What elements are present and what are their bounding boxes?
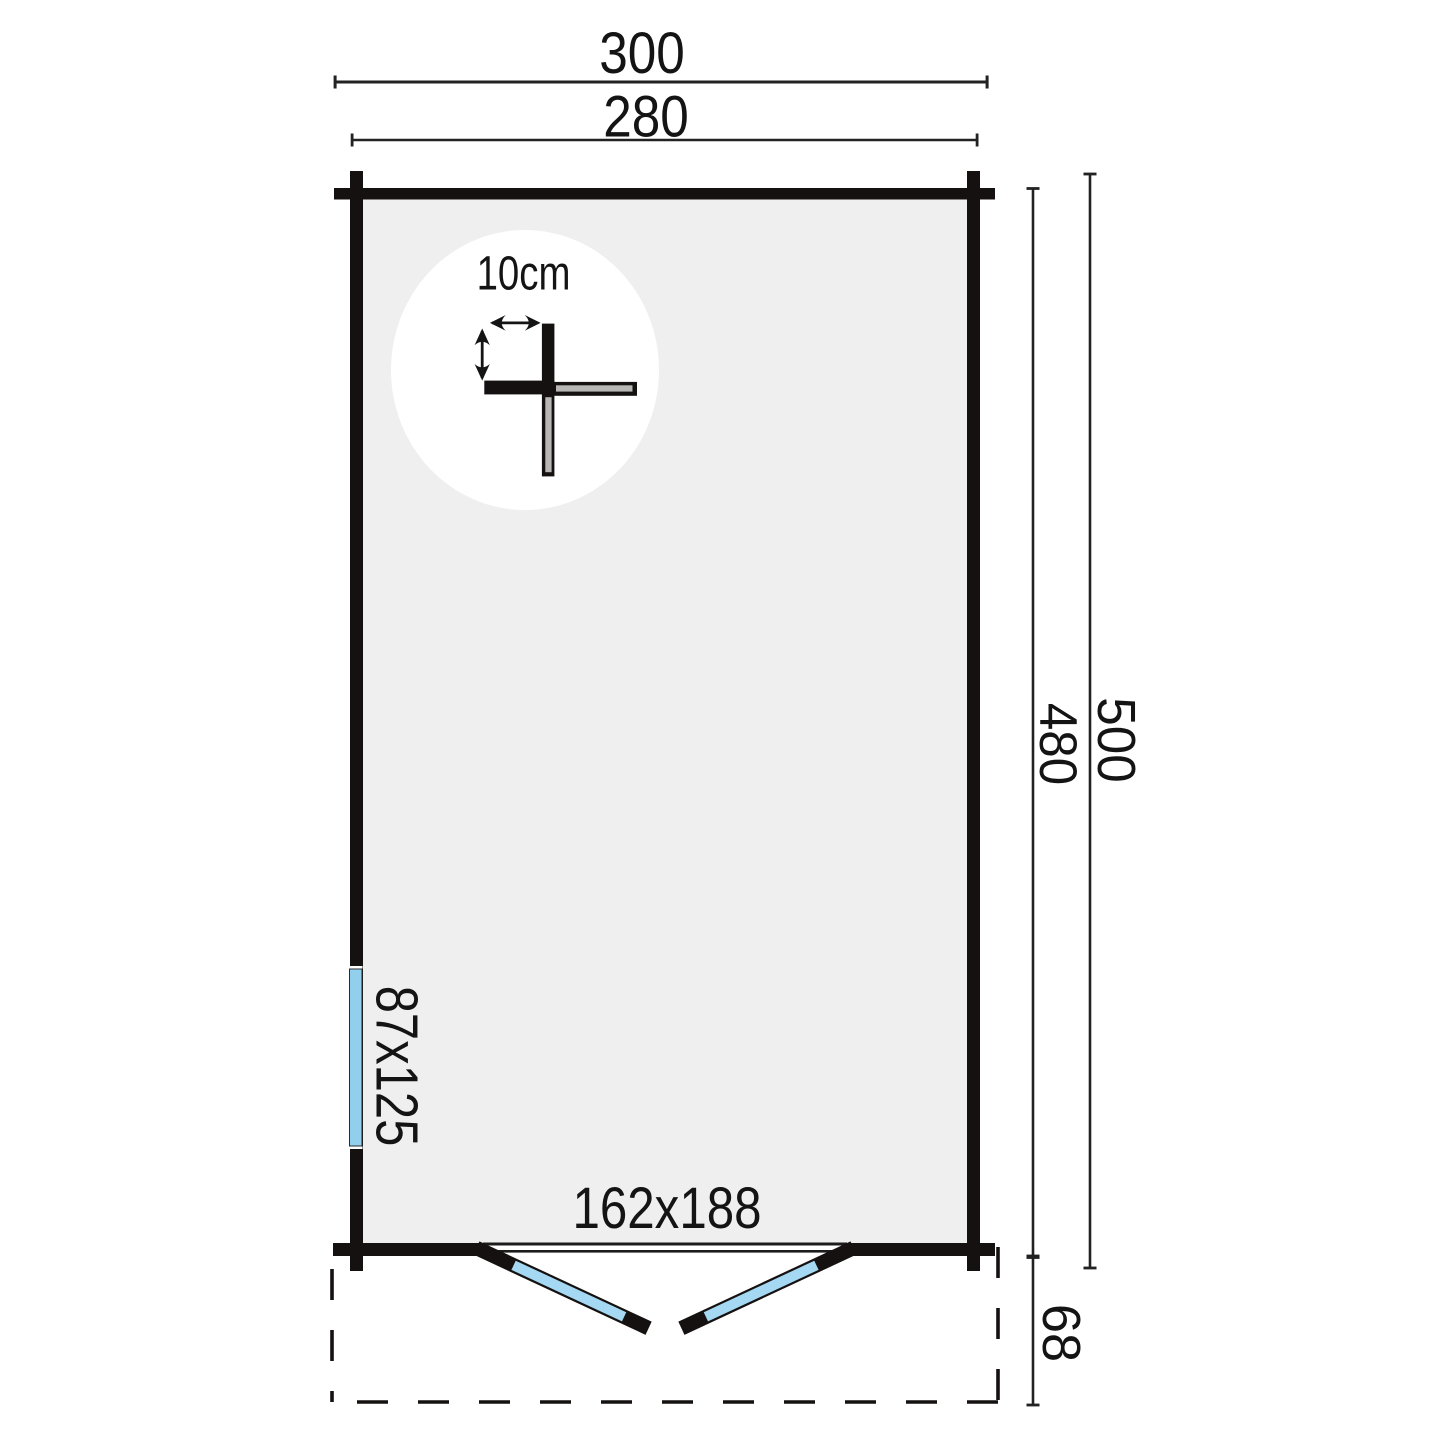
svg-text:68: 68 <box>1031 1304 1091 1362</box>
svg-text:500: 500 <box>1086 697 1146 783</box>
svg-text:280: 280 <box>603 84 689 150</box>
svg-text:10cm: 10cm <box>477 247 571 300</box>
svg-text:480: 480 <box>1028 703 1087 785</box>
svg-text:87x125: 87x125 <box>363 986 428 1147</box>
svg-text:300: 300 <box>599 20 685 86</box>
svg-text:162x188: 162x188 <box>572 1176 761 1241</box>
